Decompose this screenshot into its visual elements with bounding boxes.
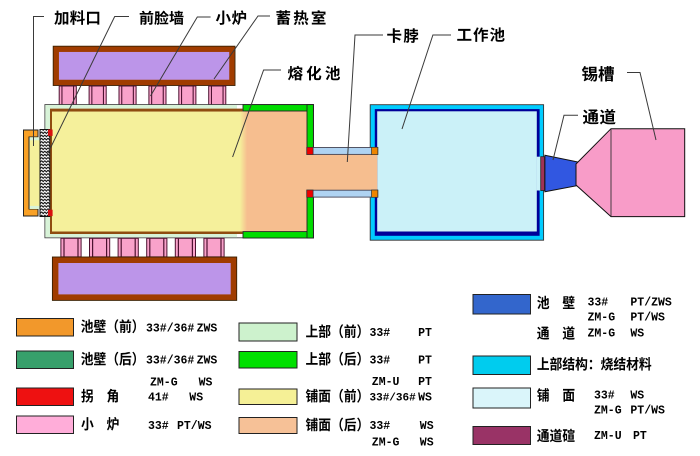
svg-text:41#: 41# bbox=[148, 392, 169, 405]
svg-text:PT: PT bbox=[418, 376, 432, 389]
svg-text:33#/36#: 33#/36# bbox=[146, 355, 194, 368]
svg-text:PT/WS: PT/WS bbox=[630, 312, 665, 325]
svg-text:PT/ZWS: PT/ZWS bbox=[630, 297, 672, 310]
svg-text:WS: WS bbox=[420, 420, 434, 433]
svg-text:33#/36#: 33#/36# bbox=[370, 393, 417, 405]
svg-text:33#: 33# bbox=[370, 420, 391, 433]
svg-text:ZM-G: ZM-G bbox=[588, 327, 616, 340]
svg-text:WS: WS bbox=[420, 436, 434, 449]
svg-text:ZWS: ZWS bbox=[197, 355, 218, 368]
svg-text:PT/WS: PT/WS bbox=[630, 404, 665, 417]
svg-text:WS: WS bbox=[630, 389, 644, 402]
svg-text:PT: PT bbox=[418, 327, 432, 340]
svg-text:WS: WS bbox=[630, 327, 644, 340]
svg-text:33#: 33# bbox=[594, 389, 615, 402]
svg-text:33#: 33# bbox=[370, 327, 391, 340]
svg-text:33#: 33# bbox=[370, 355, 391, 368]
svg-text:ZM-G: ZM-G bbox=[372, 436, 400, 449]
svg-text:PT: PT bbox=[633, 430, 647, 443]
svg-text:33#: 33# bbox=[148, 420, 169, 433]
svg-text:ZWS: ZWS bbox=[197, 323, 218, 336]
svg-text:33#: 33# bbox=[588, 297, 609, 310]
svg-text:33#/36#: 33#/36# bbox=[146, 323, 194, 336]
svg-text:PT/WS: PT/WS bbox=[177, 420, 212, 433]
svg-text:PT: PT bbox=[418, 355, 432, 368]
svg-text:ZM-G: ZM-G bbox=[150, 376, 178, 389]
svg-text:ZM-U: ZM-U bbox=[372, 376, 400, 389]
svg-text:ZM-U: ZM-U bbox=[594, 430, 622, 443]
svg-text:WS: WS bbox=[189, 392, 203, 405]
svg-text:WS: WS bbox=[199, 376, 213, 389]
svg-text:WS: WS bbox=[418, 392, 432, 405]
svg-text:ZM-G: ZM-G bbox=[588, 312, 616, 325]
svg-text:ZM-G: ZM-G bbox=[594, 404, 622, 417]
